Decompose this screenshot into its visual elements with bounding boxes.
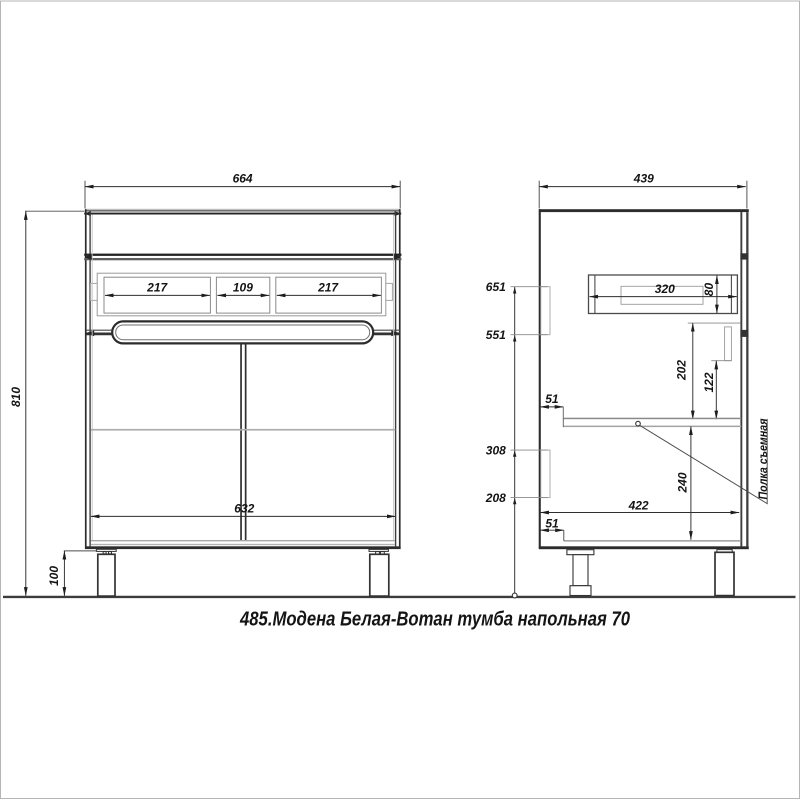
svg-text:109: 109 [233, 281, 253, 295]
svg-text:240: 240 [676, 472, 690, 493]
svg-text:485.Модена Белая-Вотан тумба н: 485.Модена Белая-Вотан тумба напольная 7… [239, 608, 630, 630]
svg-text:80: 80 [702, 283, 716, 297]
svg-text:217: 217 [317, 281, 339, 295]
svg-text:208: 208 [485, 491, 506, 505]
svg-text:308: 308 [486, 444, 506, 458]
svg-text:439: 439 [633, 171, 654, 185]
svg-text:422: 422 [628, 499, 649, 513]
svg-text:320: 320 [655, 282, 675, 296]
svg-text:122: 122 [702, 372, 716, 392]
svg-text:100: 100 [47, 566, 61, 586]
svg-text:217: 217 [146, 281, 168, 295]
svg-text:632: 632 [234, 501, 254, 515]
svg-text:551: 551 [486, 328, 506, 342]
svg-text:202: 202 [675, 360, 689, 381]
svg-text:664: 664 [233, 172, 253, 186]
svg-text:651: 651 [486, 280, 506, 294]
svg-text:51: 51 [545, 392, 559, 406]
svg-text:Полка съемная: Полка съемная [756, 419, 770, 500]
svg-text:51: 51 [545, 517, 559, 531]
svg-text:810: 810 [9, 387, 23, 407]
